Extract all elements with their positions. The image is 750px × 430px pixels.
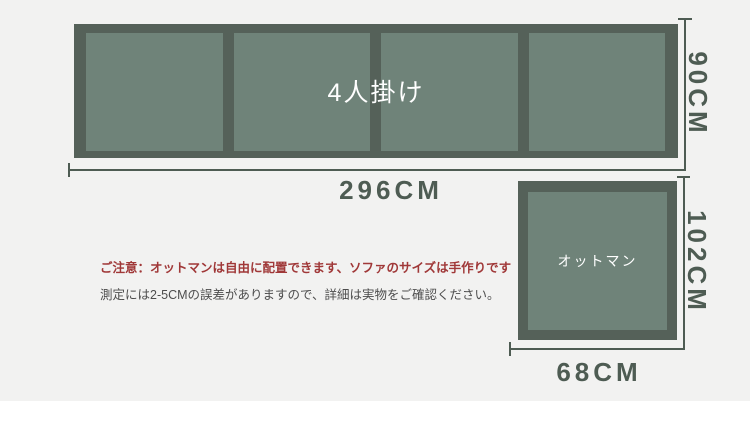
disclaimer-text: 測定には2-5CMの誤差がありますので、詳細は実物をご確認ください。 [100, 286, 500, 304]
ottoman-cushion [528, 192, 667, 330]
sofa-cushion [234, 33, 371, 151]
sofa-height-dimension-tick [678, 18, 692, 20]
sofa-4seater [74, 24, 678, 158]
ottoman-width-dimension-tick [509, 342, 511, 356]
sofa-cushion [381, 33, 518, 151]
sofa-width-label: 296CM [316, 175, 466, 206]
size-diagram: 4人掛け 296CM 90CM オットマン 102CM 68CM ご注意：オット… [0, 0, 750, 401]
ottoman-height-label: 102CM [686, 197, 712, 327]
sofa-width-dimension-tick [68, 163, 70, 177]
sofa-cushion [529, 33, 666, 151]
ottoman-height-dimension-tick [677, 176, 690, 178]
sofa-width-dimension-line [68, 169, 686, 171]
ottoman [518, 181, 677, 340]
sofa-height-label: 90CM [687, 34, 713, 154]
footer-strip [0, 401, 750, 430]
sofa-cushion [86, 33, 223, 151]
warning-text: ご注意：オットマンは自由に配置できます、ソファのサイズは手作りです [100, 259, 511, 277]
ottoman-width-label: 68CM [529, 357, 669, 388]
ottoman-width-dimension-line [509, 348, 685, 350]
